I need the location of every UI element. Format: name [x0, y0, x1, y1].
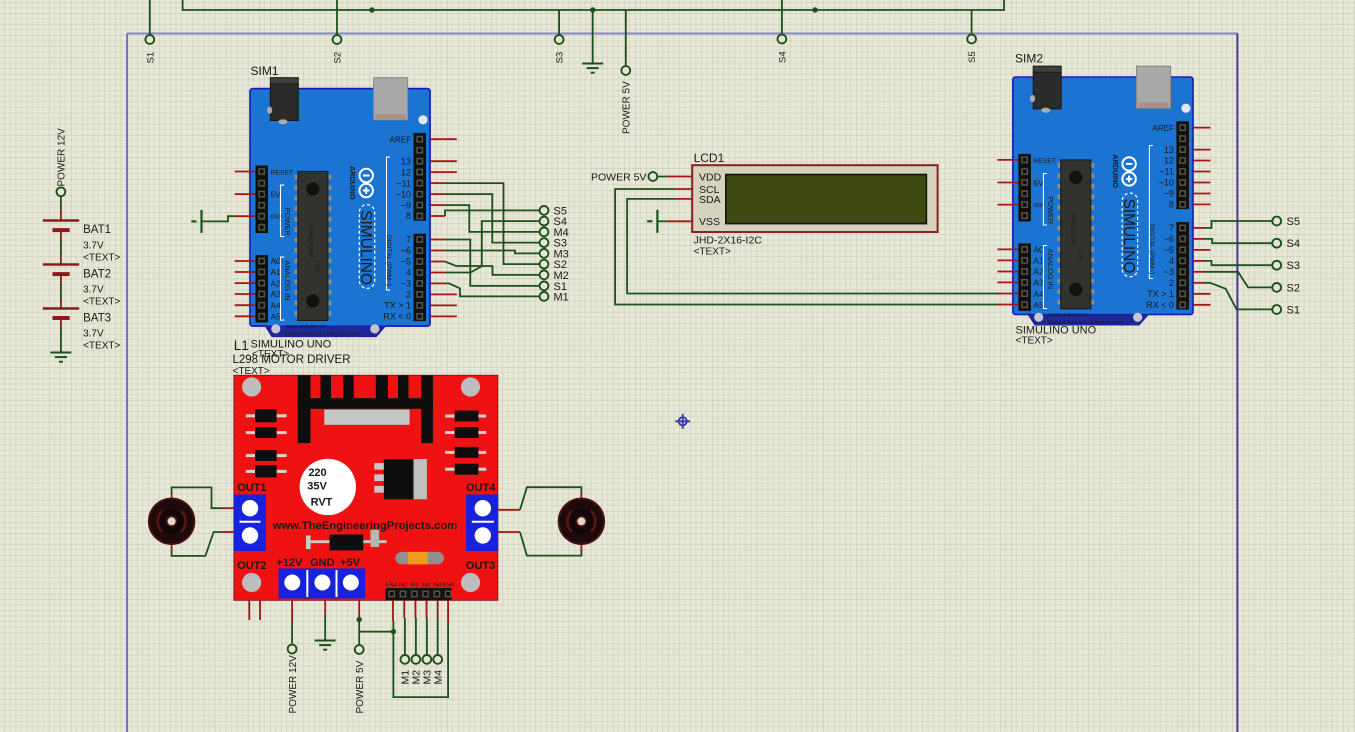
svg-text:POWER 12V: POWER 12V [288, 655, 299, 714]
svg-text:POWER 5V: POWER 5V [355, 660, 366, 713]
svg-text:<TEXT>: <TEXT> [694, 247, 731, 258]
svg-text:ENB: ENB [443, 583, 455, 589]
svg-text:S3: S3 [1287, 260, 1300, 272]
svg-text:<TEXT>: <TEXT> [83, 297, 120, 308]
svg-text:BAT2: BAT2 [83, 268, 111, 280]
svg-text:POWER 5V: POWER 5V [591, 171, 646, 183]
svg-text:OUT2: OUT2 [237, 560, 266, 572]
svg-text:S3: S3 [555, 52, 566, 64]
svg-text:S2: S2 [1287, 282, 1300, 294]
svg-text:3.7V: 3.7V [83, 241, 104, 252]
svg-text:S4: S4 [777, 51, 788, 63]
svg-text:SDA: SDA [699, 194, 721, 206]
svg-text:S1: S1 [1287, 305, 1300, 317]
svg-text:<TEXT>: <TEXT> [83, 340, 120, 351]
svg-text:www.TheEngineeringProjects.com: www.TheEngineeringProjects.com [272, 520, 458, 532]
svg-text:L1: L1 [234, 338, 249, 353]
svg-text:POWER 12V: POWER 12V [57, 128, 68, 187]
svg-text:<TEXT>: <TEXT> [1016, 336, 1053, 347]
svg-text:LCD1: LCD1 [694, 151, 725, 165]
svg-text:+12V: +12V [276, 557, 303, 569]
svg-text:L298 MOTOR DRIVER: L298 MOTOR DRIVER [233, 354, 351, 366]
svg-text:3.7V: 3.7V [83, 285, 104, 296]
svg-text:BAT3: BAT3 [83, 312, 111, 324]
svg-text:ENA: ENA [386, 583, 398, 589]
svg-text:IN3: IN3 [421, 583, 430, 589]
svg-text:OUT1: OUT1 [237, 482, 266, 494]
svg-text:S1: S1 [145, 52, 156, 64]
svg-text:VDD: VDD [699, 171, 722, 183]
svg-text:35V: 35V [307, 481, 327, 493]
svg-text:3.7V: 3.7V [83, 329, 104, 340]
svg-text:S2: S2 [333, 52, 344, 64]
svg-text:POWER 5V: POWER 5V [622, 81, 633, 134]
svg-text:BAT1: BAT1 [83, 224, 111, 236]
svg-text:S4: S4 [1287, 238, 1300, 250]
svg-text:M4: M4 [433, 670, 445, 685]
svg-text:M1: M1 [554, 291, 569, 303]
svg-text:OUT3: OUT3 [466, 560, 495, 572]
svg-text:SIM2: SIM2 [1015, 52, 1043, 66]
svg-text:GND: GND [310, 557, 335, 569]
svg-text:IN4: IN4 [433, 583, 442, 589]
svg-text:+5V: +5V [340, 557, 361, 569]
svg-text:RVT: RVT [311, 497, 333, 509]
svg-text:SIM1: SIM1 [251, 64, 279, 78]
svg-text:IN1: IN1 [399, 583, 408, 589]
svg-text:OUT4: OUT4 [466, 482, 496, 494]
svg-text:S5: S5 [967, 51, 978, 63]
svg-text:VSS: VSS [699, 216, 720, 228]
svg-text:IN2: IN2 [410, 583, 419, 589]
svg-text:JHD-2X16-I2C: JHD-2X16-I2C [694, 235, 763, 247]
svg-text:S5: S5 [1287, 216, 1300, 228]
svg-text:<TEXT>: <TEXT> [83, 253, 120, 264]
svg-text:220: 220 [308, 467, 326, 479]
